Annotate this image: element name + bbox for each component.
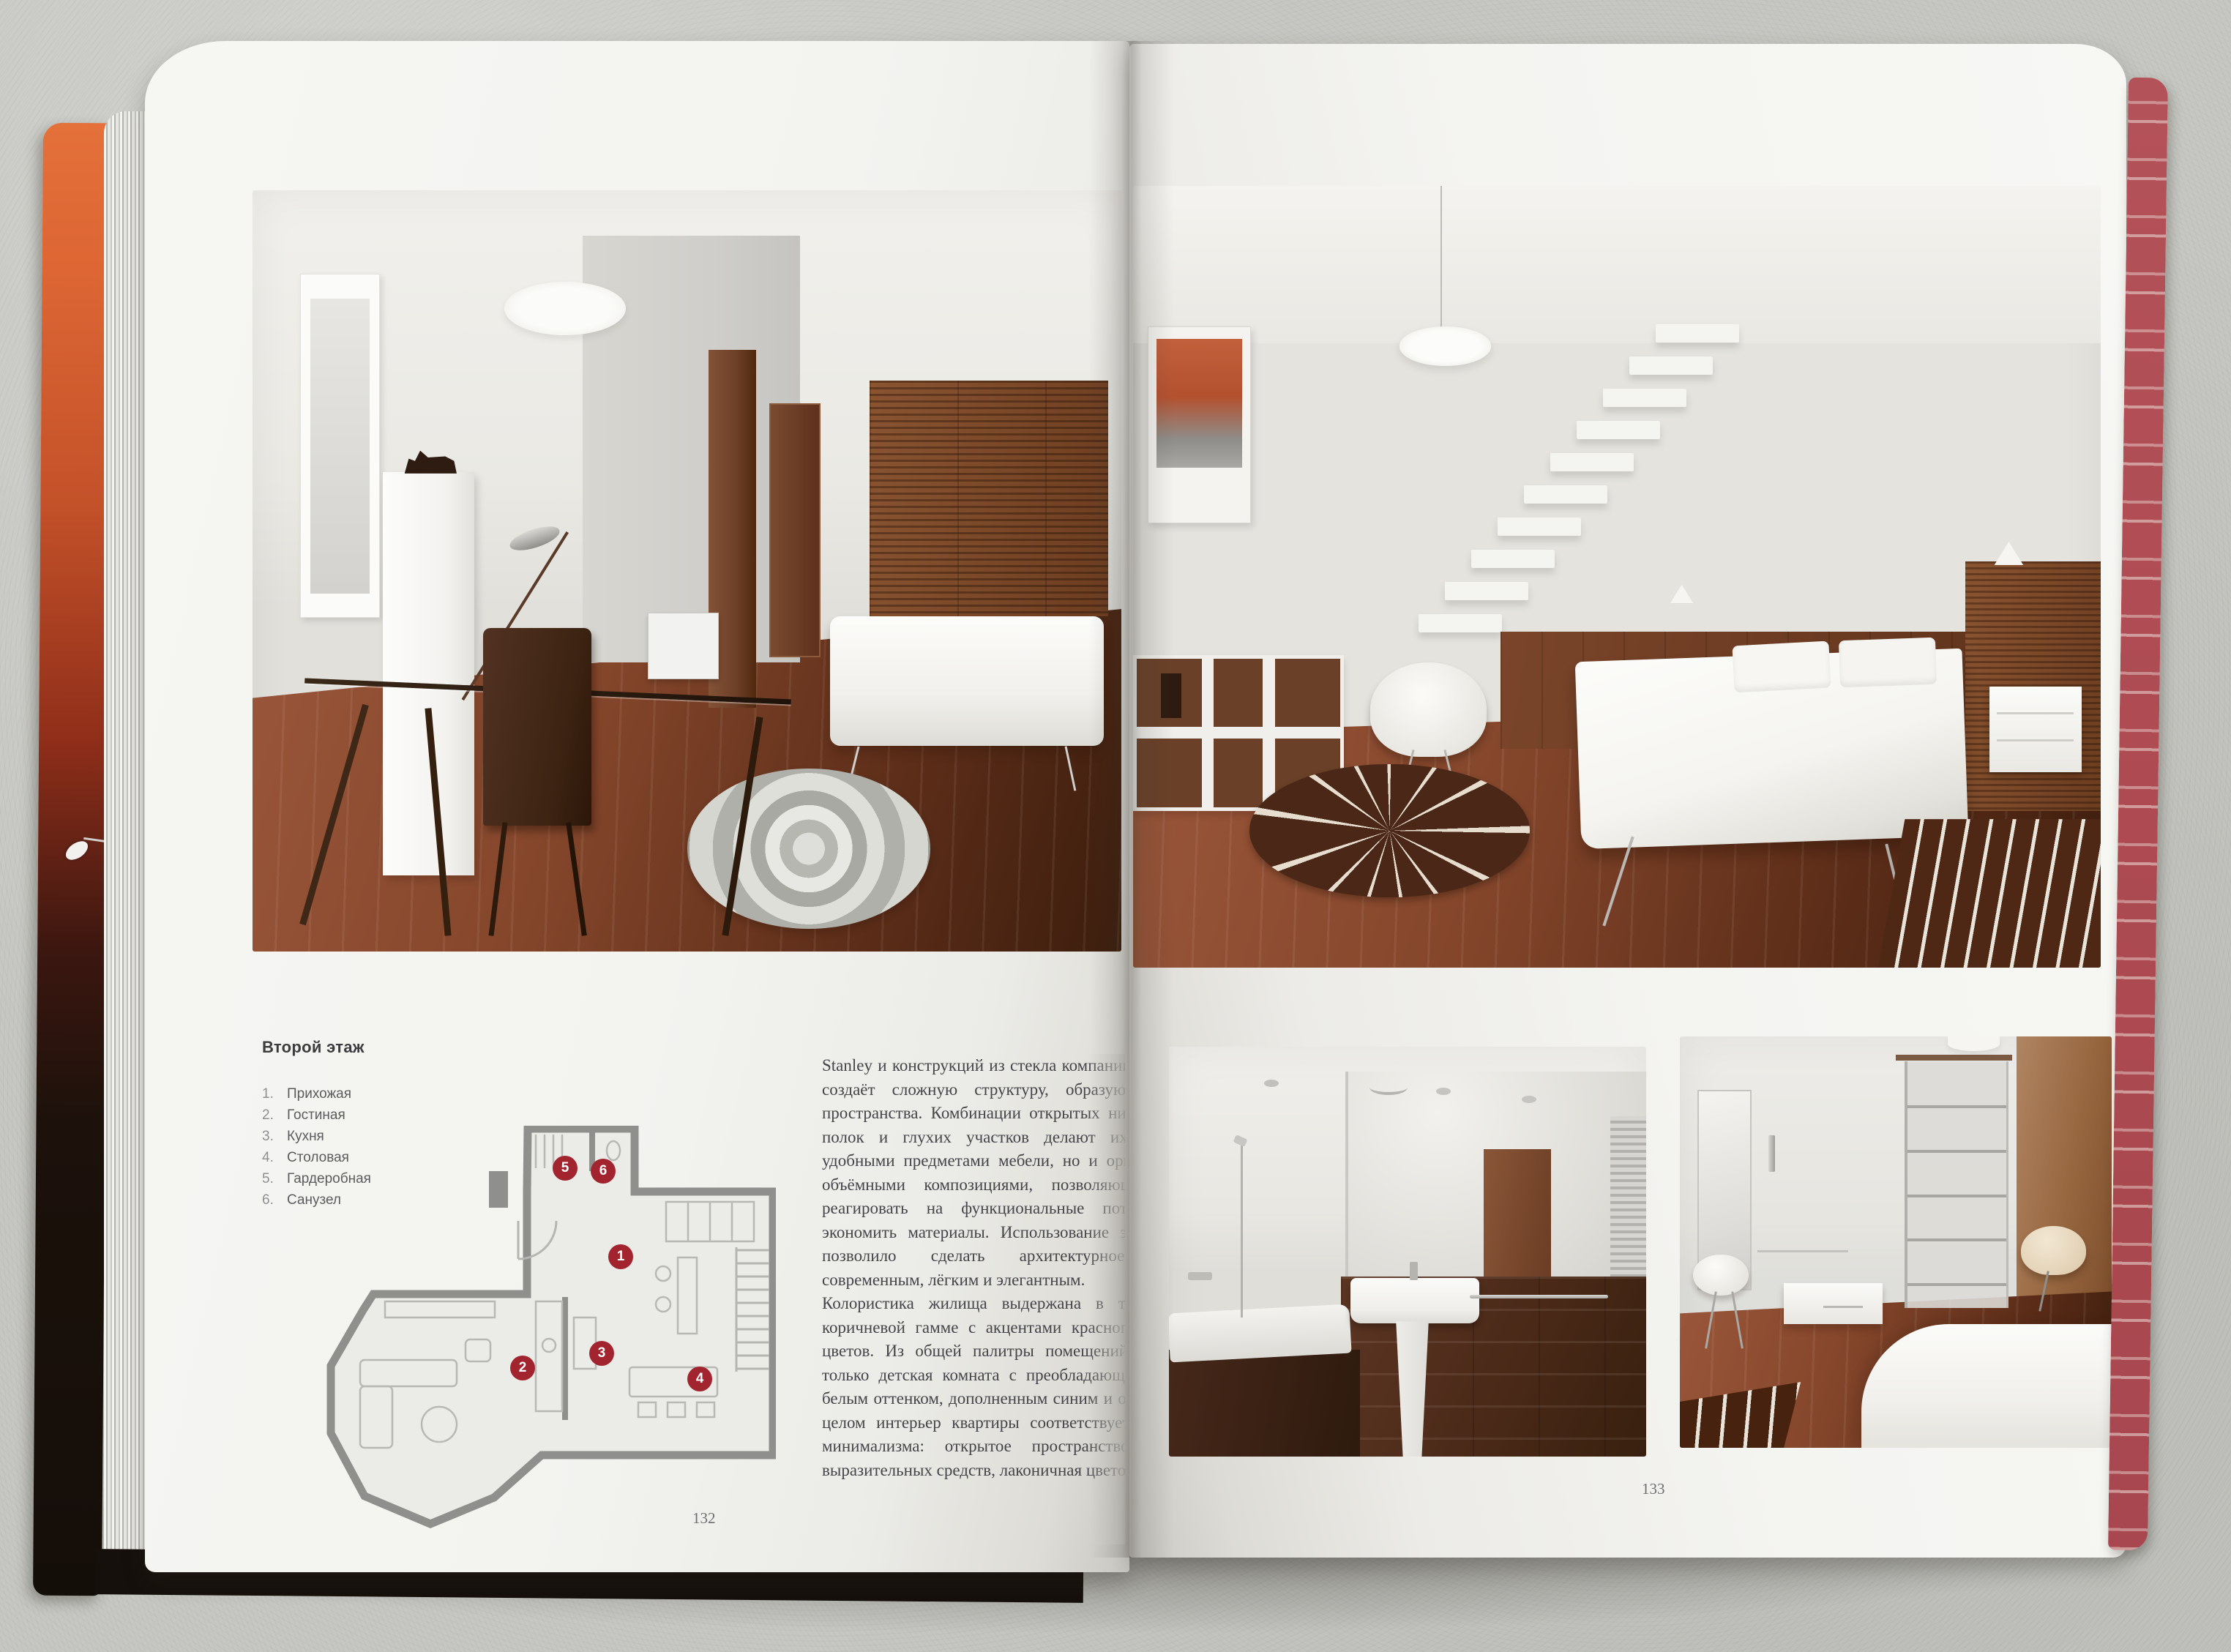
article-paragraph-2: Колористика жилища выдержана в тёплой бе… [822, 1292, 1125, 1482]
bath-mixer [1188, 1272, 1212, 1280]
office-chair [483, 628, 591, 826]
staircase-step [1577, 421, 1660, 439]
towel-radiator [1610, 1116, 1646, 1280]
striped-rug [1878, 819, 2101, 968]
page-fold-fade [1085, 1054, 1125, 1544]
floor-plan-svg [322, 1126, 776, 1528]
office-round-rug [687, 769, 930, 928]
cream-round-chair [2021, 1226, 2086, 1275]
legend-item-number: 4. [262, 1150, 287, 1171]
sink-faucet [1410, 1262, 1417, 1280]
office-picture-frame [300, 274, 380, 618]
drawer-line [1997, 712, 2074, 714]
plan-marker-6: 6 [591, 1159, 616, 1184]
frame-inner [310, 299, 370, 593]
legend-item-number: 2. [262, 1107, 287, 1129]
ceiling-spot [1436, 1088, 1451, 1095]
left-page-stack-edges [104, 111, 148, 1569]
shelf-books [1161, 673, 1181, 718]
section-heading: Второй этаж [262, 1038, 365, 1057]
bench-handle [1823, 1306, 1863, 1308]
shower-head [1233, 1135, 1247, 1147]
dressing-sconce [1768, 1135, 1775, 1173]
mirror-door-reflection [1484, 1149, 1550, 1277]
office-bamboo-panel [870, 381, 1108, 616]
plan-marker-4: 4 [687, 1367, 712, 1391]
photo-dressing-room [1680, 1036, 2112, 1448]
dog-figurine [405, 451, 457, 474]
sliding-door-rail [1896, 1055, 2012, 1061]
floor-plan: 123456 [322, 1126, 776, 1528]
office-sofa [830, 616, 1104, 746]
staircase-step [1419, 614, 1502, 632]
staircase-step [1656, 324, 1739, 343]
plan-marker-2: 2 [510, 1356, 535, 1380]
nightstand [1989, 687, 2082, 772]
sliding-glass-door [1905, 1061, 2009, 1308]
door-bar [1907, 1238, 2007, 1241]
mirror-lamp [1369, 1080, 1408, 1095]
bedroom-painting [1148, 326, 1251, 523]
page-number-right: 133 [1642, 1480, 1665, 1498]
dressing-right-wall [2017, 1036, 2112, 1333]
dressing-bench [1784, 1283, 1883, 1324]
round-chair [1370, 662, 1487, 756]
plan-marker-1: 1 [608, 1244, 633, 1269]
staircase-step [1445, 582, 1528, 600]
photo-bathroom [1169, 1047, 1646, 1457]
drawer-line [1997, 739, 2074, 741]
bed-pillow [1732, 640, 1831, 692]
ceiling-spot [1264, 1080, 1279, 1087]
left-page: Второй этаж 1.Прихожая2.Гостиная3.Кухня4… [145, 41, 1129, 1572]
page-number-left: 132 [692, 1509, 716, 1528]
legend-item-label: Прихожая [287, 1086, 351, 1107]
door-bar [1907, 1195, 2007, 1197]
pedestal-sink-basin [1350, 1278, 1479, 1323]
shelf-board [1137, 727, 1340, 739]
legend-item-label: Кухня [287, 1129, 324, 1150]
door-bar [1907, 1283, 2007, 1286]
article-paragraph-1: Stanley и конструкций из стекла компании… [822, 1054, 1125, 1292]
right-page: 133 [1129, 44, 2126, 1558]
legend-item-number: 3. [262, 1129, 287, 1150]
towel-bar [1470, 1295, 1608, 1298]
photo-bedroom [1133, 186, 2101, 968]
photo-home-office [253, 190, 1121, 952]
legend-item-number: 6. [262, 1192, 287, 1214]
staircase-step [1524, 485, 1607, 504]
ceiling-pendant [1948, 1036, 2000, 1051]
legend-item-прихожая: 1.Прихожая [262, 1086, 371, 1107]
plan-marker-5: 5 [553, 1156, 578, 1181]
shower-hose [1241, 1145, 1243, 1317]
glass-shelf [1757, 1250, 1848, 1252]
legend-item-number: 5. [262, 1171, 287, 1192]
staircase-step [1629, 356, 1713, 375]
shelf-divider [1202, 659, 1214, 807]
door-bar [1907, 1105, 2007, 1108]
tub-front-panel [1169, 1350, 1360, 1457]
white-bed-corner [1861, 1324, 2112, 1448]
staircase-step [1471, 550, 1555, 568]
shelf-divider [1263, 659, 1275, 807]
office-cabinet [383, 472, 474, 875]
door-bar [1907, 1150, 2007, 1153]
staircase-step [1550, 453, 1634, 471]
laptop [648, 613, 719, 679]
staircase-step [1603, 389, 1686, 407]
dressing-stool [1693, 1255, 1749, 1296]
office-hall-door [769, 403, 820, 657]
book-spread-photo: Второй этаж 1.Прихожая2.Гостиная3.Кухня4… [0, 0, 2231, 1652]
bed-pillow [1839, 638, 1937, 688]
dark-round-rug [1249, 764, 1530, 897]
painting-art [1156, 339, 1242, 468]
plan-marker-3: 3 [589, 1341, 614, 1366]
article-text: Stanley и конструкций из стекла компании… [822, 1054, 1125, 1544]
staircase-step [1498, 517, 1581, 536]
bathtub [1169, 1304, 1351, 1363]
office-ceiling-lamp [504, 282, 626, 335]
legend-item-number: 1. [262, 1086, 287, 1107]
